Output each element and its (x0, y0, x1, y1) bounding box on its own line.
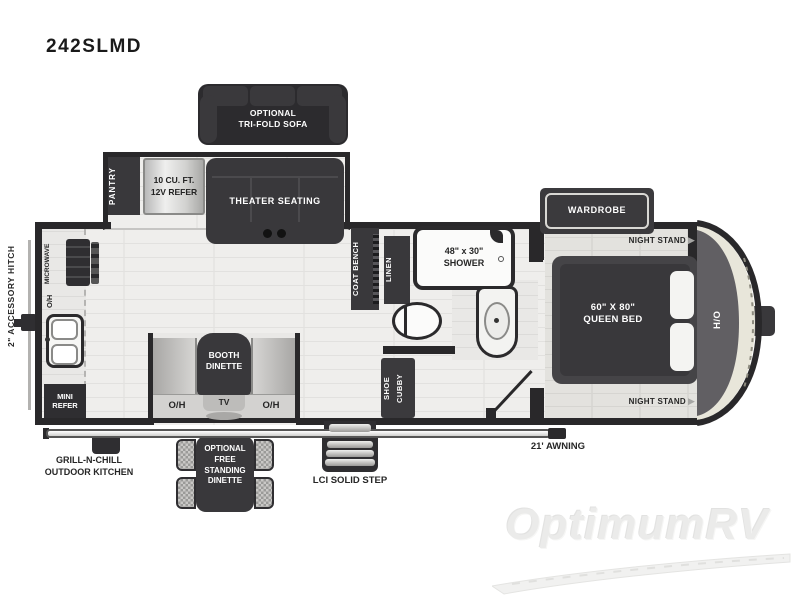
shower-label: 48" x 30" SHOWER (444, 246, 485, 269)
outdoor-kitchen-label: GRILL-N-CHILL OUTDOOR KITCHEN (10, 455, 168, 478)
pantry-cabinet: PANTRY (108, 157, 140, 215)
watermark-logo: OptimumRV (482, 500, 792, 550)
shower-drain-icon (498, 256, 504, 262)
awning-bar (46, 429, 551, 438)
faucet-icon (45, 337, 50, 342)
toilet-tank-line (404, 306, 407, 337)
night-stand-bottom-label: NIGHT STAND (610, 397, 686, 407)
linen-label: LINEN (384, 236, 410, 304)
step-tread (326, 450, 374, 457)
accessory-hitch-label: 2" ACCESSORY HITCH (6, 228, 22, 364)
booth-bench (251, 338, 295, 394)
lci-step-label: LCI SOLID STEP (302, 475, 398, 487)
coat-bench-label: COAT BENCH (351, 228, 373, 310)
step-tread (327, 441, 373, 448)
refrigerator-label: 10 CU. FT. 12V REFER (151, 175, 197, 197)
accessory-hitch-nub (14, 319, 22, 327)
theater-backrest-line (212, 176, 338, 178)
dinette-chair (254, 477, 274, 509)
overhead-cabinet-label: O/H (160, 400, 194, 412)
booth-bench (153, 338, 197, 394)
watermark-road-icon (492, 552, 792, 596)
toilet (392, 302, 442, 340)
faucet-icon (494, 318, 499, 323)
stove-cooktop (66, 239, 90, 286)
floorplan-canvas: OptimumRV 242SLMD 2" ACCESSORY HITCH OPT… (0, 0, 800, 600)
coat-bench-seat (373, 234, 379, 304)
wall-segment (530, 388, 544, 420)
cup-holder-icon (277, 229, 286, 238)
queen-bed-label: 60" X 80" QUEEN BED (560, 302, 666, 327)
step-tread (325, 459, 375, 466)
microwave-label: MICROWAVE (44, 236, 58, 292)
front-cap (685, 218, 777, 428)
awning-end-cap (548, 428, 566, 439)
theater-seating-label: THEATER SEATING (206, 196, 344, 208)
pantry-label: PANTRY (108, 157, 140, 215)
dinette-chair (176, 477, 196, 509)
arrow-right-icon: ▶ (688, 396, 695, 407)
free-standing-dinette-label: OPTIONAL FREE STANDING DINETTE (196, 444, 254, 487)
shoe-cubby-label: SHOE CUBBY (381, 358, 415, 418)
wall-segment (35, 222, 111, 229)
mini-refrigerator: MINI REFER (44, 384, 86, 418)
model-number: 242SLMD (46, 36, 142, 58)
ho-label: H/O (712, 296, 727, 344)
wall-segment (35, 222, 42, 425)
sink-bowl (51, 344, 78, 365)
entry-step-tread (329, 424, 371, 432)
shoe-cubby: SHOE CUBBY (381, 358, 415, 418)
dinette-chair (254, 439, 274, 471)
tv-label: TV (203, 397, 245, 408)
sofa-label: OPTIONAL TRI-FOLD SOFA (198, 108, 348, 130)
dinette-chair (176, 439, 196, 471)
mini-refrigerator-label: MINI REFER (52, 392, 77, 410)
outdoor-grill (92, 436, 120, 454)
wardrobe-slideout: WARDROBE (540, 188, 654, 234)
linen-closet: LINEN (384, 236, 410, 304)
overhead-cabinet-label: O/H (45, 287, 59, 315)
accessory-hitch-receiver (21, 314, 36, 331)
sofa-cushion (250, 86, 295, 106)
booth-dinette-label: BOOTH DINETTE (197, 350, 251, 372)
arrow-right-icon: ▶ (688, 235, 695, 246)
awning-label: 21' AWNING (500, 441, 585, 453)
entry-door-hinge (486, 408, 496, 418)
wall-segment (35, 418, 154, 425)
table-pedestal (206, 412, 242, 420)
refrigerator: 10 CU. FT. 12V REFER (143, 158, 205, 215)
sink-bowl (51, 319, 78, 340)
wall-segment (383, 346, 455, 354)
stove-knobs (91, 242, 99, 284)
wardrobe-label: WARDROBE (568, 205, 626, 217)
cup-holder-icon (263, 229, 272, 238)
night-stand-top-label: NIGHT STAND (610, 236, 686, 246)
overhead-cabinet-label: O/H (254, 400, 288, 412)
